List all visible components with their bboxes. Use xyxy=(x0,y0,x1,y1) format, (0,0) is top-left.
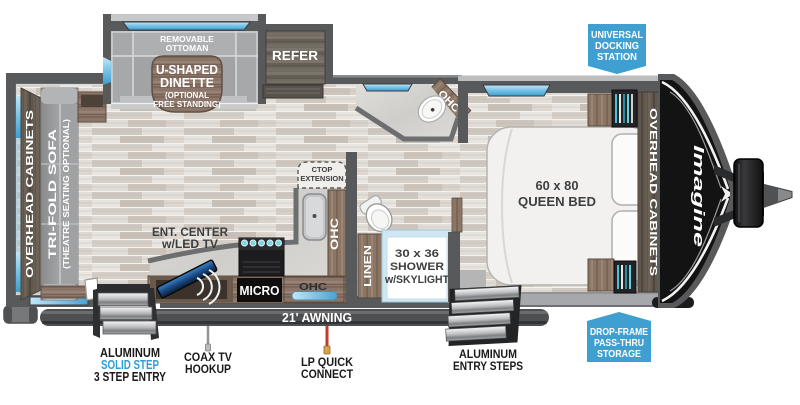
svg-text:CONNECT: CONNECT xyxy=(301,367,354,381)
svg-text:LINEN: LINEN xyxy=(363,245,374,287)
svg-text:SHOWER: SHOWER xyxy=(390,261,444,273)
svg-text:Imagine: Imagine xyxy=(690,145,707,247)
svg-text:TRI-FOLD SOFA: TRI-FOLD SOFA xyxy=(47,129,59,259)
svg-text:OVERHEAD CABINETS: OVERHEAD CABINETS xyxy=(647,108,659,276)
svg-text:OTTOMAN: OTTOMAN xyxy=(166,43,209,53)
svg-text:(THEATRE SEATING OPTIONAL): (THEATRE SEATING OPTIONAL) xyxy=(62,119,71,269)
svg-text:STATION: STATION xyxy=(597,51,637,63)
svg-text:EXTENSION: EXTENSION xyxy=(300,174,343,183)
svg-text:60 x 80: 60 x 80 xyxy=(536,179,579,193)
svg-text:DINETTE: DINETTE xyxy=(160,76,214,90)
svg-text:21' AWNING: 21' AWNING xyxy=(282,310,352,325)
svg-text:STORAGE: STORAGE xyxy=(597,348,641,360)
svg-text:ENTRY STEPS: ENTRY STEPS xyxy=(453,359,523,373)
svg-text:U-SHAPED: U-SHAPED xyxy=(156,63,218,77)
svg-text:QUEEN BED: QUEEN BED xyxy=(518,195,596,209)
svg-text:FREE STANDING): FREE STANDING) xyxy=(153,100,221,109)
svg-text:3 STEP ENTRY: 3 STEP ENTRY xyxy=(94,370,167,384)
svg-text:HOOKUP: HOOKUP xyxy=(185,362,231,376)
svg-text:ENT. CENTER: ENT. CENTER xyxy=(152,227,229,239)
svg-text:(OPTIONAL: (OPTIONAL xyxy=(165,91,209,100)
svg-text:OHC: OHC xyxy=(329,218,341,250)
svg-text:30 x 36: 30 x 36 xyxy=(395,248,439,260)
svg-text:w/LED TV: w/LED TV xyxy=(161,239,218,251)
svg-text:REFER: REFER xyxy=(272,48,319,63)
svg-text:CTOP: CTOP xyxy=(312,165,333,174)
svg-text:MICRO: MICRO xyxy=(240,283,280,298)
svg-text:OVERHEAD CABINETS: OVERHEAD CABINETS xyxy=(24,110,36,278)
svg-text:w/SKYLIGHT: w/SKYLIGHT xyxy=(384,274,449,286)
